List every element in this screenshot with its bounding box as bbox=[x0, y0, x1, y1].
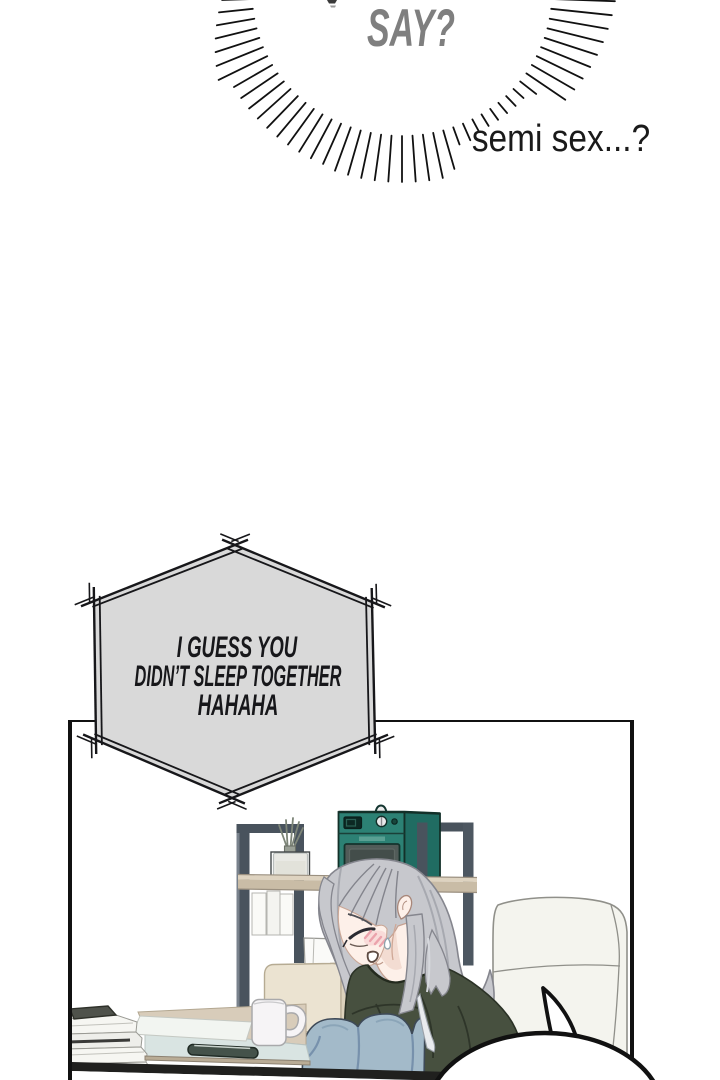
svg-text:semi sex...?: semi sex...? bbox=[472, 117, 650, 159]
svg-text:SAY?: SAY? bbox=[367, 0, 455, 58]
svg-text:HAHAHA: HAHAHA bbox=[198, 689, 279, 723]
